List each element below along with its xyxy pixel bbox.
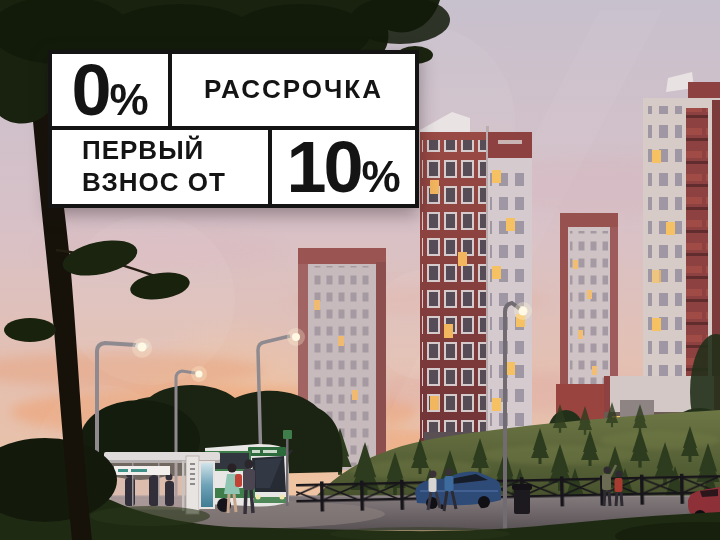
promo-banner: 0% РАССРОЧКА ПЕРВЫЙ ВЗНОС ОТ 10% <box>48 50 419 208</box>
down-payment-value: 10 <box>286 135 360 200</box>
shelter-ad-lightbox <box>200 462 214 508</box>
installment-rate-value: 0 <box>71 58 108 123</box>
down-payment-label-line-2: ВЗНОС ОТ <box>82 167 226 199</box>
listing-photo: 0% РАССРОЧКА ПЕРВЫЙ ВЗНОС ОТ 10% <box>0 0 720 540</box>
down-payment-unit: % <box>361 157 400 197</box>
promo-banner-row-1: 0% РАССРОЧКА <box>48 50 419 130</box>
installment-label-box: РАССРОЧКА <box>168 50 419 130</box>
down-payment-value-box: 10% <box>268 126 419 208</box>
installment-rate-box: 0% <box>48 50 172 130</box>
building-tower-2 <box>420 112 532 450</box>
promo-banner-row-2: ПЕРВЫЙ ВЗНОС ОТ 10% <box>48 126 419 208</box>
installment-label: РАССРОЧКА <box>204 74 383 105</box>
trash-bin <box>512 484 532 514</box>
installment-rate-unit: % <box>109 80 148 120</box>
down-payment-label-line-1: ПЕРВЫЙ <box>82 135 226 167</box>
down-payment-label-box: ПЕРВЫЙ ВЗНОС ОТ <box>48 126 272 208</box>
